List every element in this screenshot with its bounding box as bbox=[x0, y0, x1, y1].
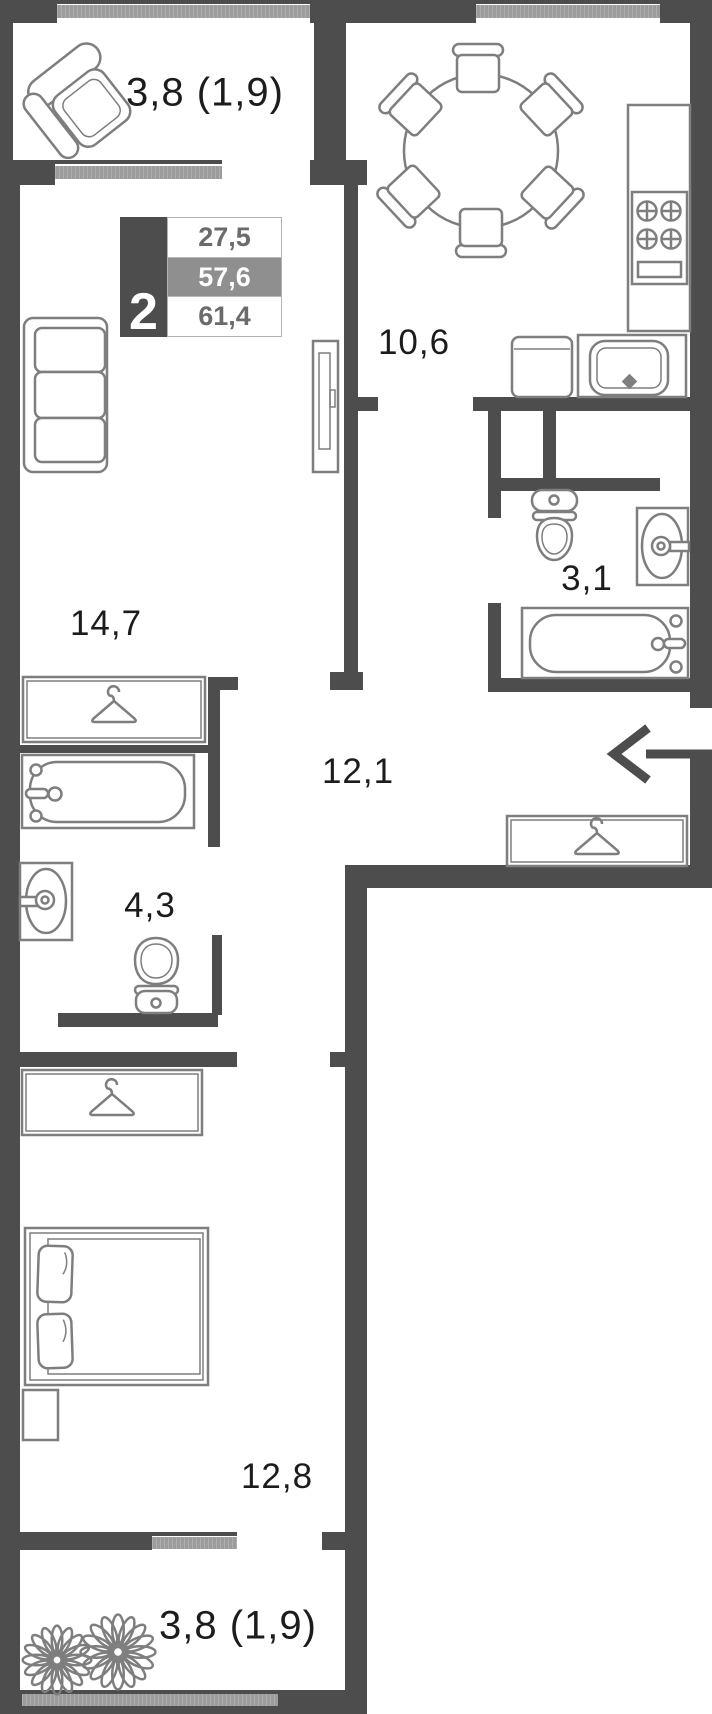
armchair bbox=[15, 38, 143, 165]
room-label-bathroom-small: 3,1 bbox=[561, 559, 613, 599]
wardrobe bbox=[507, 816, 687, 866]
tv-unit bbox=[313, 341, 338, 472]
dining-chair bbox=[453, 44, 503, 92]
toilet bbox=[532, 490, 577, 560]
unit-info-badge: 2 27,5 57,6 61,4 bbox=[120, 217, 282, 337]
room-label-balcony-bottom: 3,8 (1,9) bbox=[159, 1604, 317, 1649]
room-label-balcony-top: 3,8 (1,9) bbox=[126, 71, 284, 116]
bed bbox=[25, 1228, 208, 1385]
flower-icon bbox=[23, 1626, 92, 1695]
kitchen-cabinet bbox=[512, 337, 572, 397]
stove bbox=[632, 192, 687, 284]
area-table: 27,5 57,6 61,4 bbox=[167, 217, 282, 337]
room-label-bedroom: 12,8 bbox=[241, 1457, 313, 1497]
area-value-highlighted: 57,6 bbox=[168, 258, 281, 298]
kitchen-sink bbox=[578, 335, 686, 397]
entry-arrow-icon bbox=[614, 728, 712, 780]
rooms-count: 2 bbox=[120, 217, 167, 337]
room-label-bathroom-large: 4,3 bbox=[124, 886, 176, 926]
wardrobe bbox=[23, 677, 205, 742]
toilet bbox=[135, 938, 178, 1013]
flower-icon bbox=[81, 1615, 156, 1690]
wardrobe bbox=[22, 1070, 202, 1135]
room-label-hallway: 12,1 bbox=[322, 752, 394, 792]
dining-chair bbox=[456, 209, 506, 257]
area-value: 27,5 bbox=[168, 218, 281, 258]
room-label-living-room: 14,7 bbox=[70, 604, 142, 644]
floorplan: 3,8 (1,9) 10,6 14,7 3,1 12,1 4,3 12,8 3,… bbox=[0, 0, 712, 1714]
bathroom-sink bbox=[637, 508, 689, 585]
nightstand bbox=[23, 1390, 58, 1440]
furniture-layer bbox=[0, 0, 712, 1714]
bathtub bbox=[22, 755, 194, 828]
area-value: 61,4 bbox=[168, 297, 281, 336]
bathroom-sink bbox=[20, 863, 72, 940]
room-label-kitchen: 10,6 bbox=[378, 323, 450, 363]
pillow bbox=[37, 1313, 73, 1368]
pillow bbox=[37, 1245, 73, 1302]
sofa bbox=[24, 318, 107, 472]
bathtub bbox=[522, 608, 688, 678]
